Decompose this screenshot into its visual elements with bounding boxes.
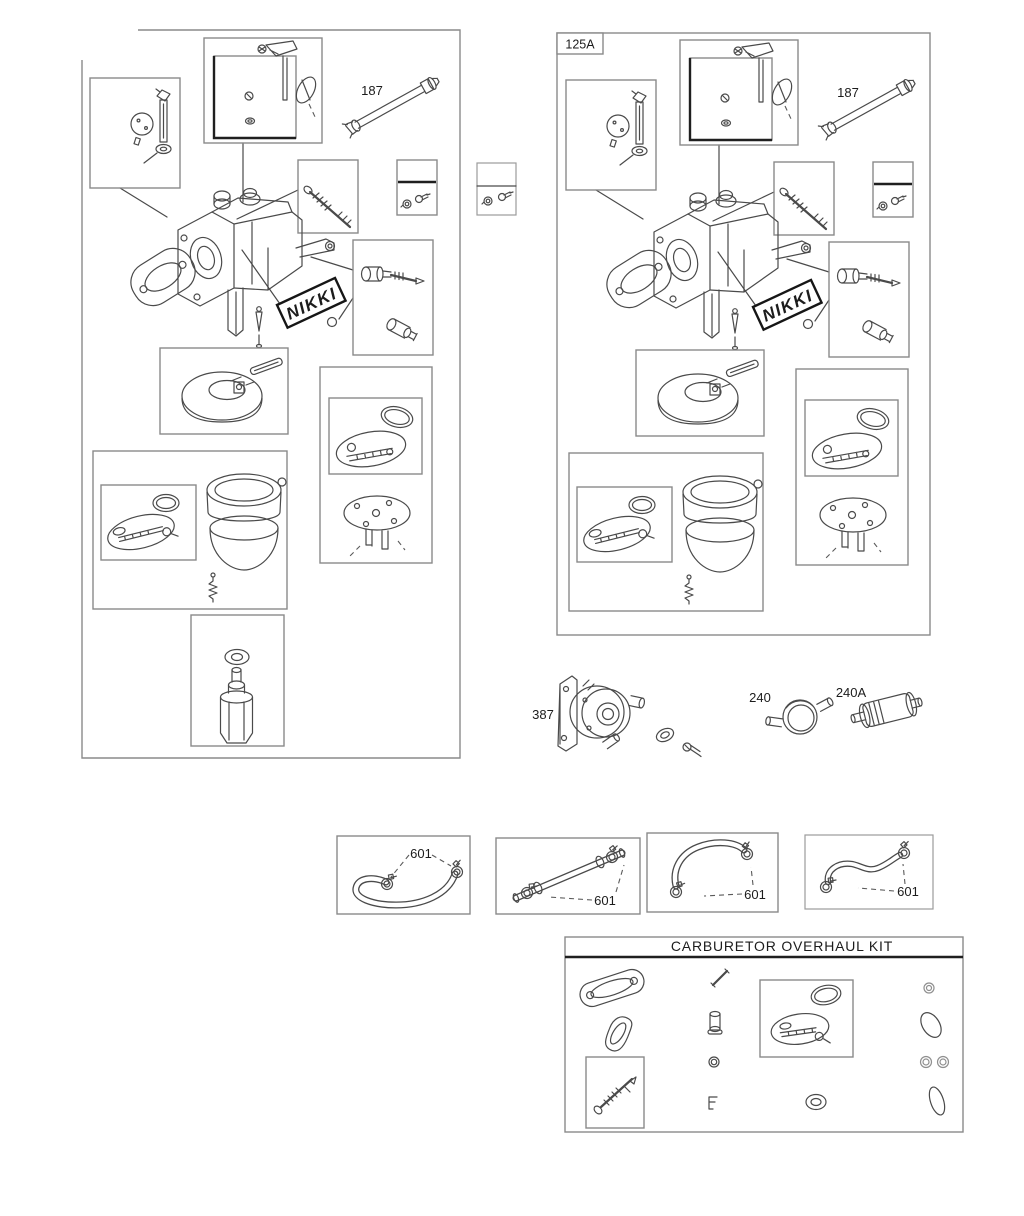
carburetor-assembly-right: 125A 187 NIKKI xyxy=(557,33,930,635)
kit-diaphragm-box xyxy=(760,980,853,1057)
inline-filter-illustration xyxy=(765,697,834,734)
inline-filter-label: 240 xyxy=(749,690,771,705)
kit-thin-oring xyxy=(926,1085,947,1117)
kit-grommet xyxy=(806,1095,826,1110)
hose-kit-label-3: 601 xyxy=(744,887,766,902)
parts-diagram-svg: 187 NIKKI 125A 187 NIKKI xyxy=(0,0,1024,1216)
fuel-pump-illustration xyxy=(558,676,645,751)
fuel-filter-box xyxy=(191,615,284,746)
kit-hinge-pin xyxy=(711,969,729,987)
hose-kit-box-1: 601 xyxy=(337,836,470,914)
pump-grommet xyxy=(654,726,675,744)
kit-medium-oring xyxy=(917,1009,946,1041)
kit-washer xyxy=(924,983,934,993)
kit-flange-gasket xyxy=(577,966,647,1009)
hose-kit-label-1: 601 xyxy=(410,846,432,861)
carburetor-assembly-left: 187 NIKKI xyxy=(82,30,516,758)
hose-kit-label-4: 601 xyxy=(897,884,919,899)
kit-plunger xyxy=(708,1012,722,1035)
loose-parts-row: 387 240 xyxy=(532,676,925,757)
fuel-pump-label: 387 xyxy=(532,707,554,722)
fuel-pipe-label-right: 187 xyxy=(837,85,859,100)
fuel-filter-element xyxy=(221,668,253,744)
fuel-pipe-label-left: 187 xyxy=(361,83,383,98)
hose-kit-box-2: 601 xyxy=(496,838,640,914)
canister-filter-label: 240A xyxy=(836,685,867,700)
kit-ring-pair xyxy=(921,1057,949,1068)
kit-small-oring xyxy=(709,1057,719,1067)
hose-kit-label-2: 601 xyxy=(594,893,616,908)
kit-clip xyxy=(709,1097,717,1109)
parts-diagram-page: 187 NIKKI 125A 187 NIKKI xyxy=(0,0,1024,1216)
overhaul-kit-title: CARBURETOR OVERHAUL KIT xyxy=(671,938,893,954)
spare-fastener-box xyxy=(477,163,516,215)
hose-kit-box-3: 601 xyxy=(647,833,778,912)
kit-airhorn-gasket xyxy=(600,1013,637,1055)
kit-needle-box xyxy=(586,1057,644,1128)
pump-bolt xyxy=(683,743,701,757)
overhaul-kit-box: CARBURETOR OVERHAUL KIT xyxy=(565,937,963,1132)
panel-tag-label: 125A xyxy=(565,38,595,52)
hose-kit-box-4: 601 xyxy=(805,835,933,909)
